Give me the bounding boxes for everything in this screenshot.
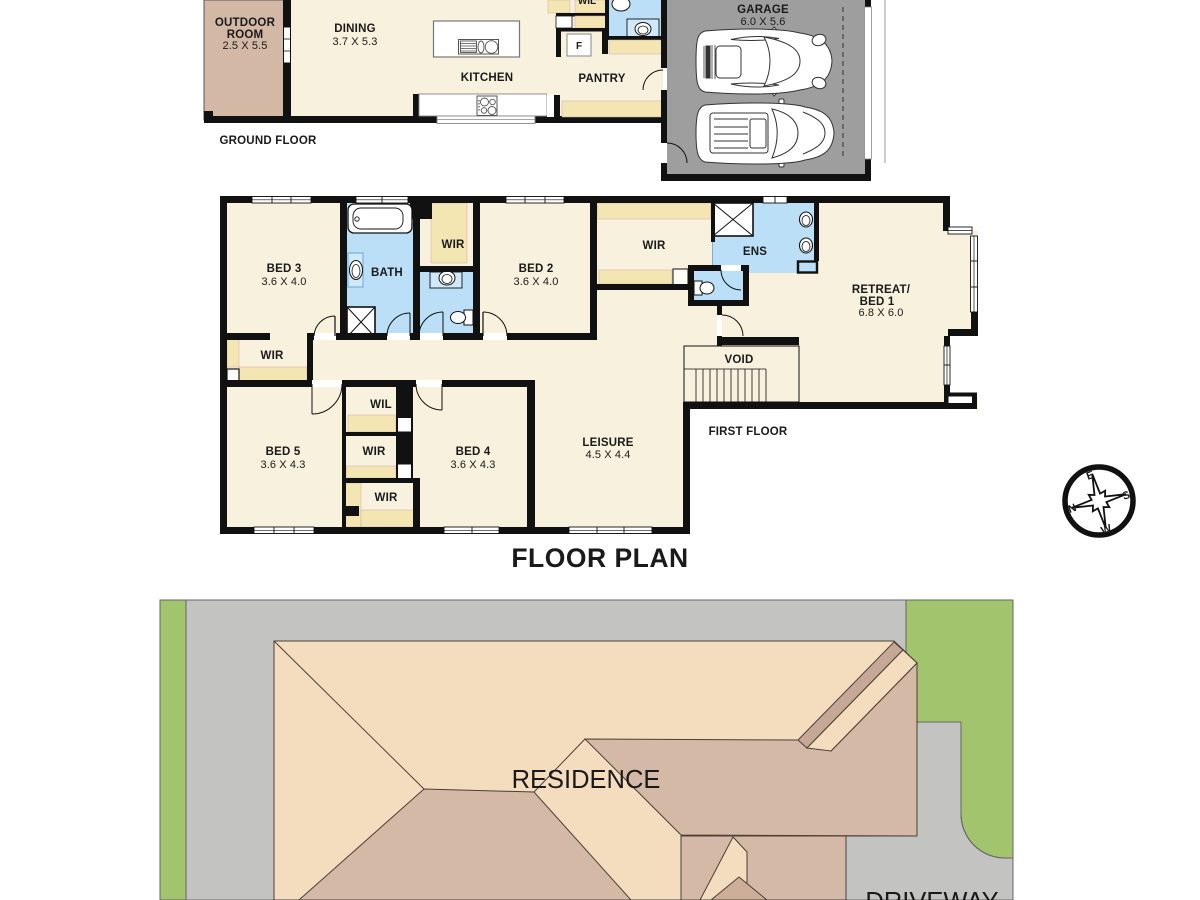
svg-text:6.8 X 6.0: 6.8 X 6.0 <box>859 307 904 319</box>
svg-text:GROUND FLOOR: GROUND FLOOR <box>220 135 317 147</box>
svg-text:4.5 X 4.4: 4.5 X 4.4 <box>586 449 631 461</box>
svg-text:F: F <box>576 41 582 52</box>
svg-text:BED 4: BED 4 <box>456 446 491 458</box>
svg-text:3.6 X 4.3: 3.6 X 4.3 <box>451 459 496 471</box>
svg-text:KITCHEN: KITCHEN <box>461 72 514 84</box>
svg-text:BED 3: BED 3 <box>267 263 302 275</box>
svg-text:GARAGE: GARAGE <box>737 4 789 16</box>
svg-text:3.7 X 5.3: 3.7 X 5.3 <box>333 36 378 48</box>
svg-text:ENS: ENS <box>743 246 767 258</box>
svg-text:BED 2: BED 2 <box>519 263 554 275</box>
svg-text:WIR: WIR <box>363 446 386 458</box>
svg-text:2.5 X 5.5: 2.5 X 5.5 <box>223 40 268 52</box>
svg-text:WIL: WIL <box>370 399 392 411</box>
svg-text:WIR: WIR <box>442 239 465 251</box>
svg-text:OUTDOOR: OUTDOOR <box>215 17 276 29</box>
svg-text:DINING: DINING <box>334 23 375 35</box>
svg-text:WIR: WIR <box>375 492 398 504</box>
svg-text:PANTRY: PANTRY <box>578 73 625 85</box>
svg-text:RETREAT/: RETREAT/ <box>852 284 911 296</box>
svg-text:BATH: BATH <box>371 267 403 279</box>
svg-text:6.0 X 5.6: 6.0 X 5.6 <box>741 16 786 28</box>
svg-text:LEISURE: LEISURE <box>582 437 633 449</box>
svg-text:WIR: WIR <box>261 350 284 362</box>
svg-text:BED 5: BED 5 <box>266 446 301 458</box>
svg-text:3.6 X 4.0: 3.6 X 4.0 <box>514 276 559 288</box>
svg-text:RESIDENCE: RESIDENCE <box>512 766 661 794</box>
svg-text:3.6 X 4.0: 3.6 X 4.0 <box>262 276 307 288</box>
svg-text:DRIVEWAY: DRIVEWAY <box>865 888 998 900</box>
svg-text:FIRST FLOOR: FIRST FLOOR <box>709 426 788 438</box>
svg-text:3.6 X 4.3: 3.6 X 4.3 <box>261 459 306 471</box>
svg-text:WIR: WIR <box>643 240 666 252</box>
svg-text:VOID: VOID <box>725 354 754 366</box>
svg-text:WIL: WIL <box>578 0 596 7</box>
svg-text:FLOOR PLAN: FLOOR PLAN <box>511 543 688 573</box>
